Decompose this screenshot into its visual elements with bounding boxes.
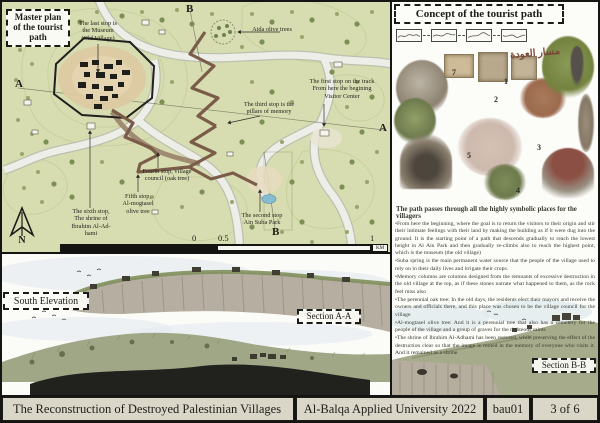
university-name: Al-Balqa Applied University 2022 [296,397,484,421]
figure-number: 3 [537,143,541,152]
storyboard-link [458,35,465,36]
north-arrow: N [8,206,36,250]
concept-text-block: The path passes through all the highly s… [395,206,595,358]
figure-number: 5 [467,151,471,160]
map-label-last-stop: The last stop is the Museum (Old Village… [68,20,128,42]
sheet-code: bau01 [486,397,530,421]
figure-number: 4 [516,186,520,195]
master-plan-map: Master plan of the tourist path A A B B … [2,2,390,252]
concept-title: Concept of the tourist path [394,4,564,24]
map-label-aida-olive-trees: Aida olive trees [242,26,302,33]
concept-bullet: Suba spring is the main permanent water … [395,258,595,273]
concept-bullet: Memory columns are columns designed from… [395,274,595,296]
collage-stone-arch [400,134,452,189]
concept-bullet: Al-mogtasel olive tree: And it is a pere… [395,320,595,335]
figure-number: 1 [504,77,508,86]
scale-tick-1: 1 [370,233,374,243]
map-label-fourth-stop: Fourth stop, village council (oak tree) [132,168,202,183]
section-letter-a-right: A [379,122,387,134]
map-label-first-stop: The first stop on the track From here th… [296,78,388,100]
storyboard-frame [396,29,422,42]
figure-number: 2 [494,95,498,104]
north-arrow-icon [8,206,36,238]
storyboard-frame [466,29,492,42]
ain-suba-park-area [246,166,282,194]
storyboard-frame [431,29,457,42]
scale-bar-white-segment [216,244,372,252]
map-label-second-stop: The second stop Ain Suba Park [224,212,300,227]
storyboard-link [423,35,430,36]
master-plan-title: Master plan of the tourist path [6,9,70,47]
section-letter-b-top: B [186,3,193,15]
concept-panel: Concept of the tourist path مسار العودة … [392,2,598,395]
collage-old-photo [444,54,474,78]
south-elevation-drawing [2,254,390,395]
south-elevation-label: South Elevation [3,292,89,310]
sketch-squiggle [502,30,526,41]
sketch-squiggle [397,30,421,41]
concept-bullet: From here the beginning, where the goal … [395,221,595,257]
north-label: N [8,235,36,246]
collage-figure-silhouette [570,46,584,86]
figure-number: 7 [452,68,456,77]
section-bb-label: Section B-B [532,358,596,373]
section-letter-a-left: A [15,78,23,90]
concept-bullet: The perennial oak tree: In the old days,… [395,297,595,319]
collage-ladder-figure [578,94,594,152]
scale-unit-box: KM [372,244,388,252]
concept-heading: The path passes through all the highly s… [396,206,595,220]
sketch-squiggle [467,30,491,41]
page-number: 3 of 6 [532,397,598,421]
storyboard-frame [501,29,527,42]
scale-bar-black-segment [60,244,216,252]
map-label-third-stop: The third stop is the pillars of memory [230,101,308,116]
collage-tree-wash [542,36,594,98]
map-scale-bar: 0 0.5 1 KM [60,236,388,252]
scale-tick-05: 0.5 [218,233,229,243]
section-aa-label: Section A-A [297,309,361,324]
project-title: The Reconstruction of Destroyed Palestin… [2,397,294,421]
scale-tick-0: 0 [192,233,196,243]
title-bar: The Reconstruction of Destroyed Palestin… [2,397,598,421]
collage-shrine-dome [542,148,594,198]
sketch-squiggle [432,30,456,41]
presentation-board: Master plan of the tourist path A A B B … [0,0,600,423]
elevation-panel: South Elevation Section A-A [2,254,390,395]
suba-spring-pond [262,195,276,204]
map-label-sixth-stop: The sixth stop, The shrine of Ibrahim Al… [60,208,122,238]
storyboard-link [493,35,500,36]
concept-bullet: The shrine of Ibrahim Al-Adhami has been… [395,335,595,357]
